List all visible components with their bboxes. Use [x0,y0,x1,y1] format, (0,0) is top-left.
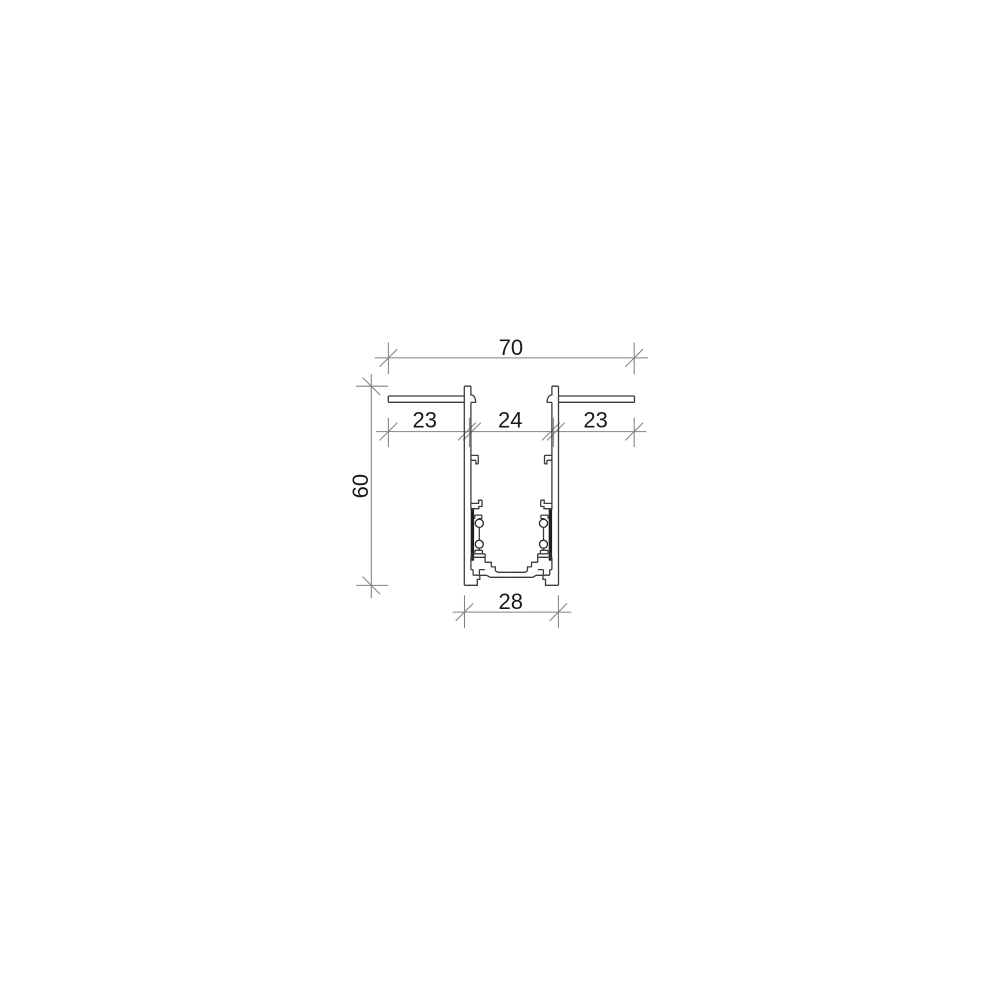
svg-text:24: 24 [498,408,522,433]
svg-text:28: 28 [499,589,523,614]
svg-text:70: 70 [499,335,523,360]
svg-text:60: 60 [348,474,373,498]
svg-text:23: 23 [413,408,437,433]
svg-text:23: 23 [583,408,607,433]
